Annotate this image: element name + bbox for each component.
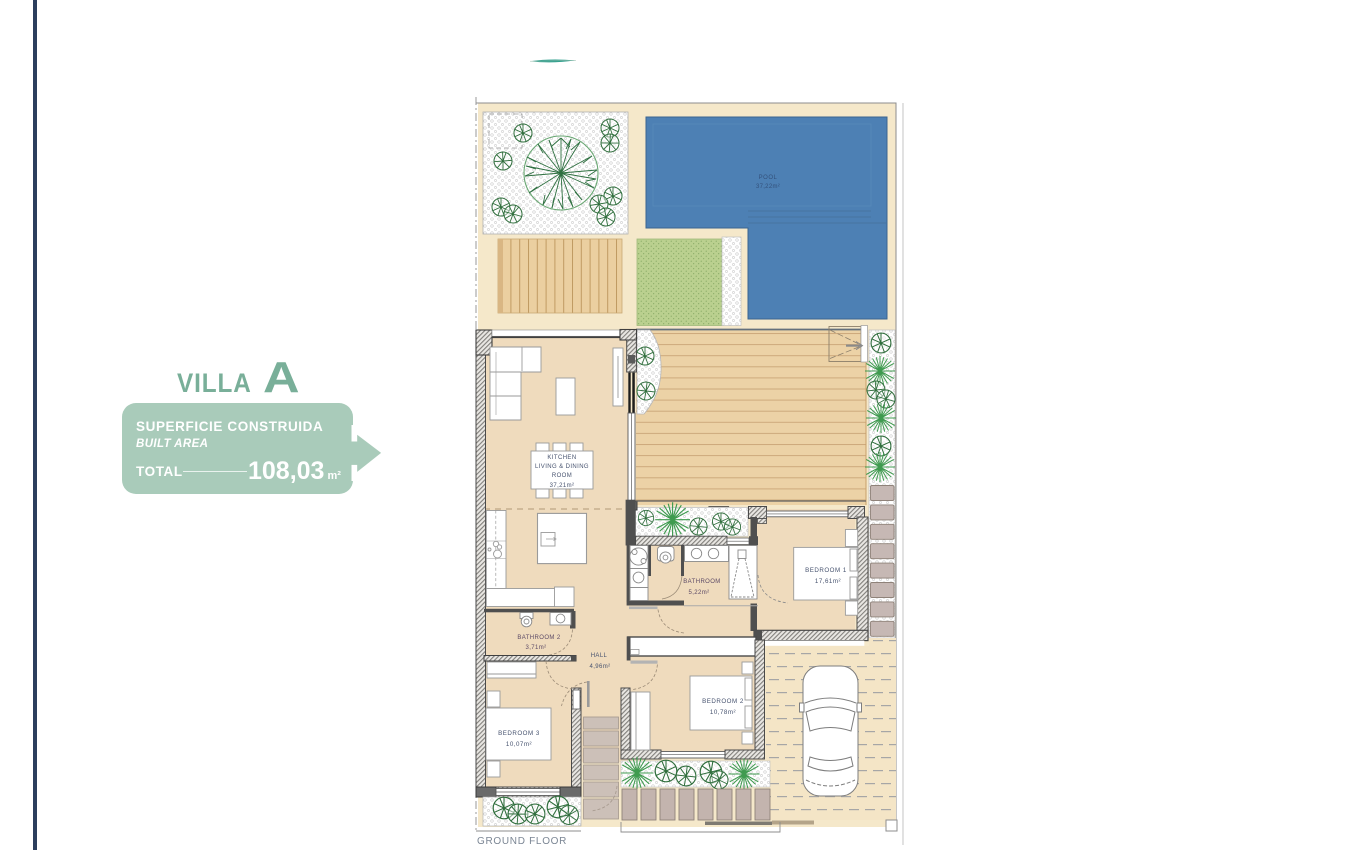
svg-text:5,22m²: 5,22m² bbox=[688, 590, 709, 596]
svg-text:GROUND FLOOR: GROUND FLOOR bbox=[477, 836, 567, 847]
svg-text:ROOM: ROOM bbox=[552, 473, 572, 479]
svg-text:10,78m²: 10,78m² bbox=[710, 709, 736, 716]
svg-text:KITCHEN: KITCHEN bbox=[547, 455, 576, 461]
svg-text:HALL: HALL bbox=[591, 653, 608, 659]
svg-text:BEDROOM 3: BEDROOM 3 bbox=[498, 730, 540, 737]
svg-text:POOL: POOL bbox=[759, 175, 778, 181]
svg-text:BATHROOM 2: BATHROOM 2 bbox=[517, 635, 560, 641]
svg-text:17,61m²: 17,61m² bbox=[815, 578, 841, 585]
svg-text:37,21m²: 37,21m² bbox=[550, 483, 575, 489]
svg-text:37,22m²: 37,22m² bbox=[756, 184, 780, 190]
svg-text:LIVING & DINING: LIVING & DINING bbox=[535, 464, 589, 470]
svg-text:BATHROOM: BATHROOM bbox=[683, 579, 720, 585]
svg-text:3,71m²: 3,71m² bbox=[525, 645, 546, 651]
svg-text:4,96m²: 4,96m² bbox=[589, 664, 610, 670]
svg-text:10,07m²: 10,07m² bbox=[506, 741, 532, 748]
svg-text:BEDROOM 1: BEDROOM 1 bbox=[805, 567, 847, 574]
svg-text:BEDROOM 2: BEDROOM 2 bbox=[702, 698, 744, 705]
